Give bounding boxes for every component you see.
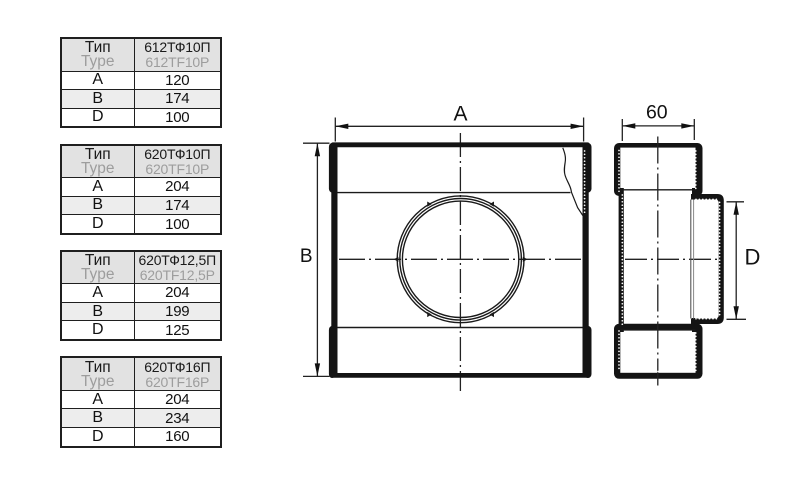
svg-text:60: 60 [646, 102, 668, 124]
svg-text:A: A [453, 103, 467, 126]
svg-text:B: B [300, 246, 313, 267]
svg-text:D: D [745, 245, 761, 270]
